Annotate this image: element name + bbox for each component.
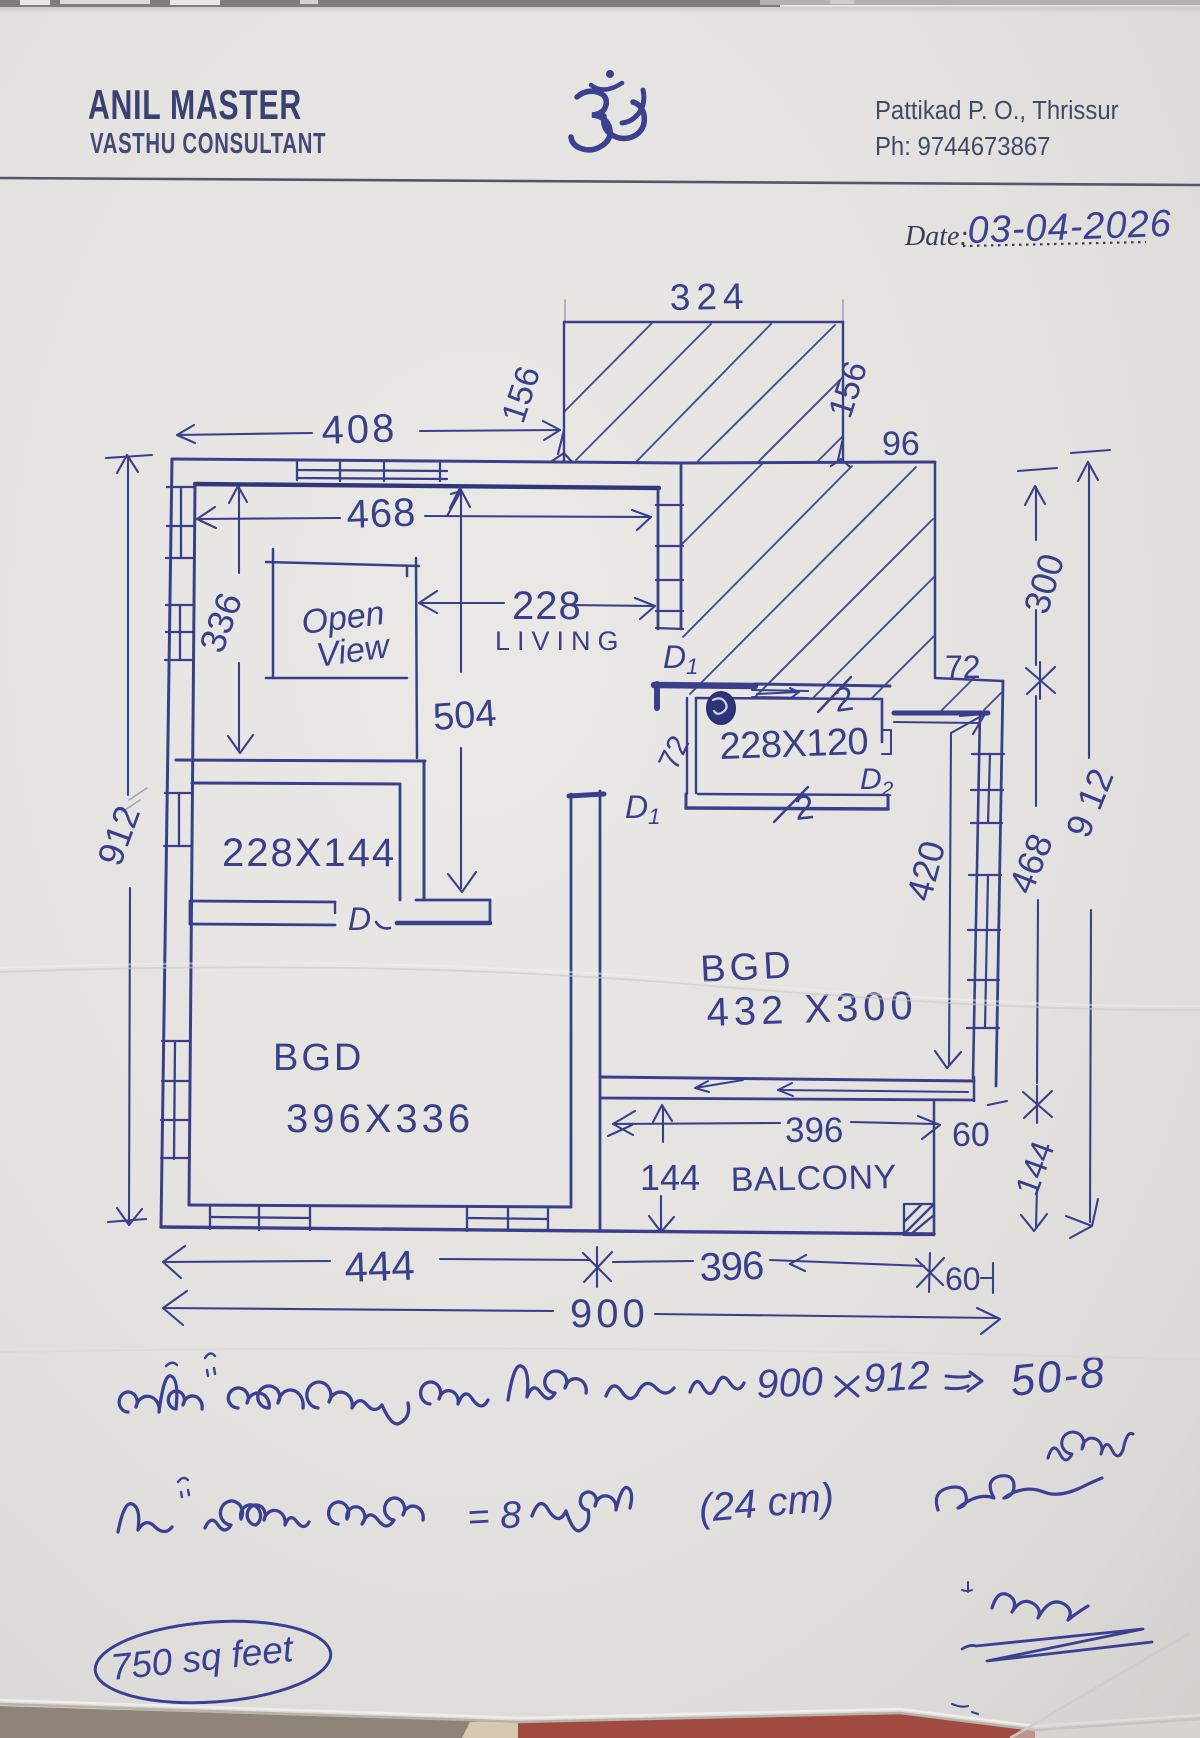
svg-text:BALCONY: BALCONY: [730, 1158, 897, 1199]
svg-text:900: 900: [755, 1360, 824, 1407]
svg-text:96: 96: [882, 425, 920, 463]
svg-text:Pattikad P. O., Thrissur: Pattikad P. O., Thrissur: [875, 96, 1119, 125]
svg-text:408: 408: [321, 406, 398, 453]
svg-text:144: 144: [640, 1157, 700, 1198]
svg-text:324: 324: [669, 276, 749, 318]
svg-text:D: D: [348, 901, 371, 937]
svg-text:03-04-2026: 03-04-2026: [967, 203, 1173, 252]
svg-text:72: 72: [945, 649, 981, 685]
svg-text:504: 504: [432, 693, 498, 739]
svg-text:228X144: 228X144: [222, 831, 396, 875]
svg-text:468: 468: [346, 491, 417, 537]
svg-text:396X336: 396X336: [286, 1097, 474, 1141]
svg-text:60: 60: [952, 1116, 990, 1154]
svg-text:912: 912: [862, 1354, 931, 1401]
svg-text:VASTHU CONSULTANT: VASTHU CONSULTANT: [90, 128, 326, 160]
svg-text:Ph: 9744673867: Ph: 9744673867: [875, 132, 1050, 161]
svg-text:228X120: 228X120: [719, 721, 869, 768]
svg-text:2: 2: [793, 788, 816, 828]
svg-text:60: 60: [945, 1261, 981, 1297]
svg-text:444: 444: [344, 1242, 416, 1291]
svg-text:396: 396: [699, 1244, 764, 1290]
svg-text:LIVING: LIVING: [495, 626, 626, 656]
svg-text:432 X300: 432 X300: [706, 984, 919, 1035]
svg-text:228: 228: [512, 584, 582, 628]
svg-text:= 8: = 8: [466, 1494, 522, 1539]
svg-text:ANIL MASTER: ANIL MASTER: [88, 81, 302, 128]
svg-text:900: 900: [570, 1292, 649, 1336]
svg-text:Date:: Date:: [904, 221, 969, 252]
svg-text:396: 396: [785, 1111, 843, 1150]
svg-text:BGD: BGD: [273, 1037, 364, 1079]
